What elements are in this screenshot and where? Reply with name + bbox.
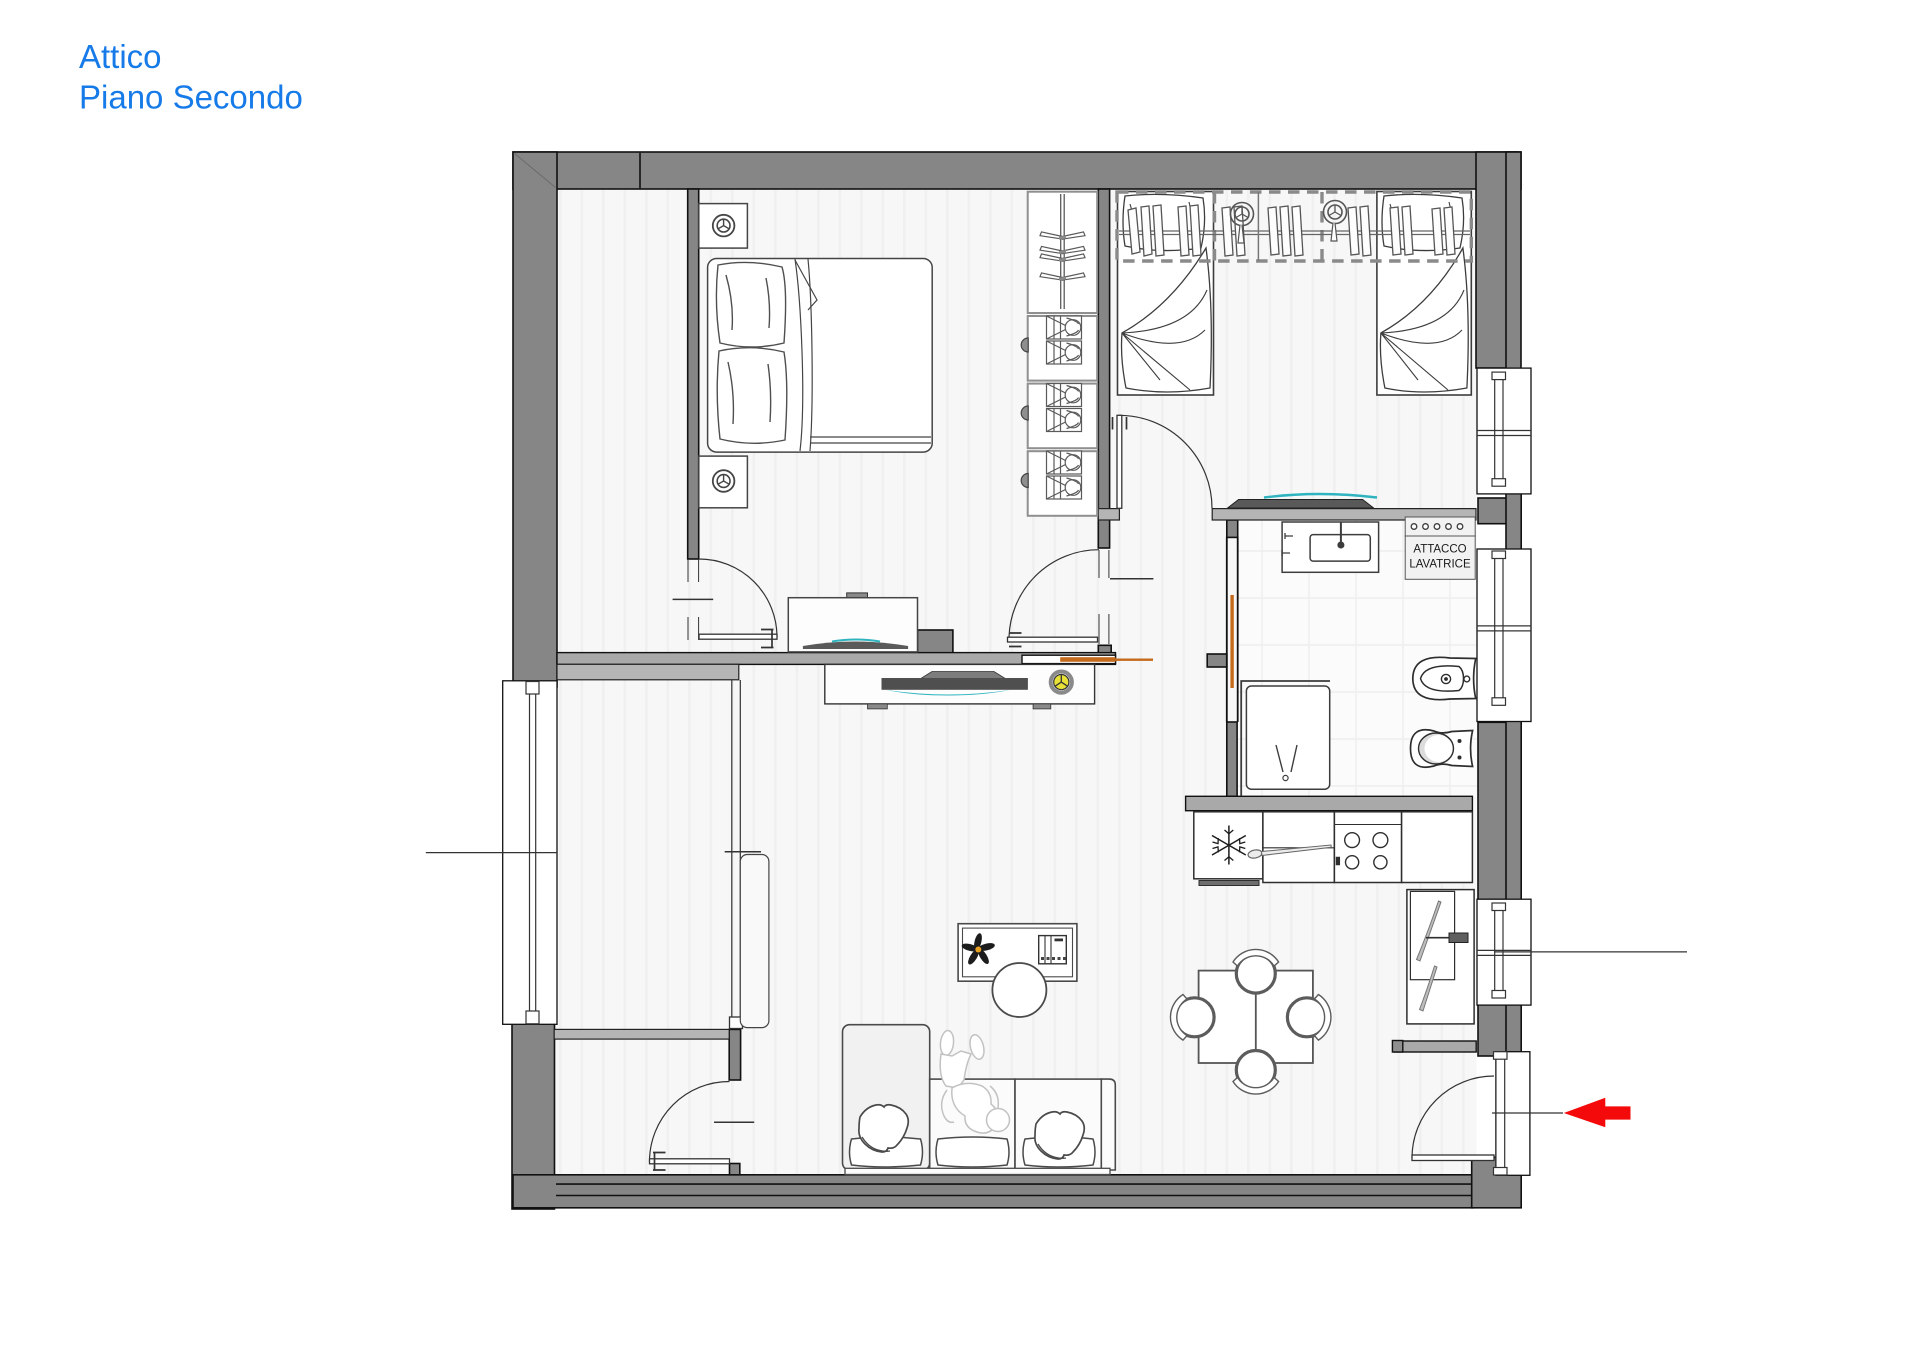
svg-text:LAVATRICE: LAVATRICE: [1409, 559, 1471, 571]
svg-text:Piano Secondo: Piano Secondo: [79, 79, 303, 116]
svg-text:Attico: Attico: [79, 38, 162, 75]
svg-text:ATTACCO: ATTACCO: [1413, 544, 1466, 556]
